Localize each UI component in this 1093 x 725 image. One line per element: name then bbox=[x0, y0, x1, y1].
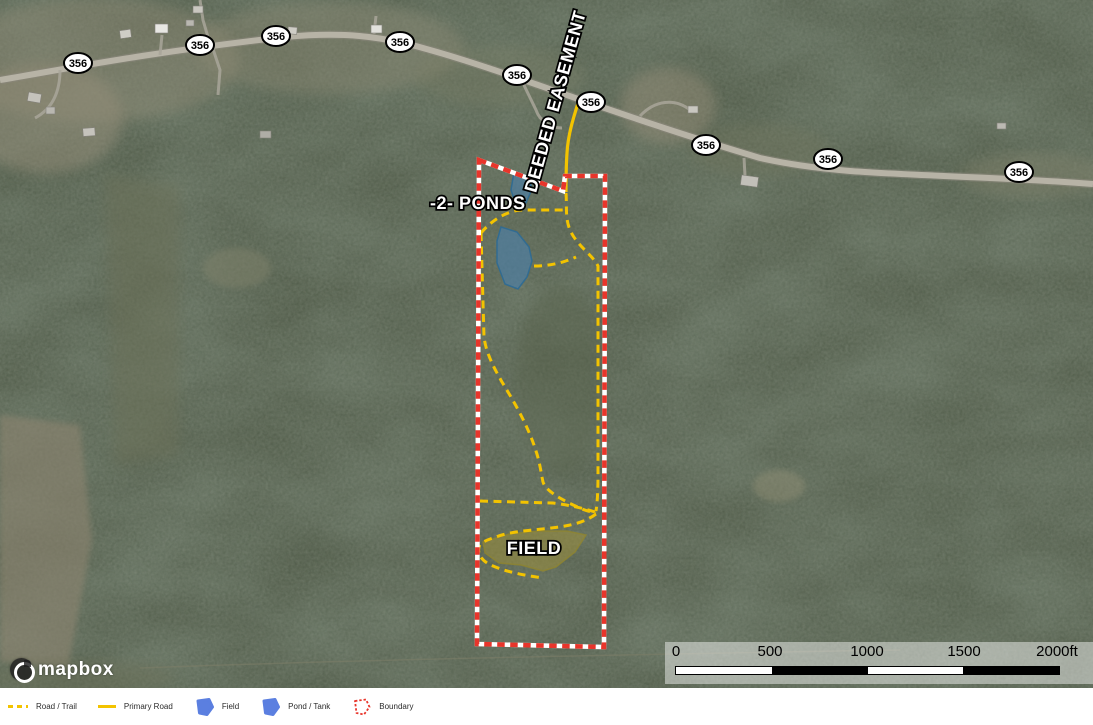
svg-text:356: 356 bbox=[582, 97, 600, 109]
legend-label: Pond / Tank bbox=[288, 702, 330, 711]
svg-text:356: 356 bbox=[267, 31, 285, 43]
legend-item-road-trail: Road / Trail bbox=[8, 702, 77, 711]
field-label: FIELD bbox=[507, 538, 562, 558]
svg-text:356: 356 bbox=[697, 140, 715, 152]
scale-segment bbox=[868, 667, 964, 674]
scale-segment bbox=[963, 667, 1059, 674]
route-shield-356: 356 bbox=[503, 65, 531, 85]
legend-item-primary-road: Primary Road bbox=[98, 702, 173, 711]
mapbox-logo[interactable]: mapbox bbox=[10, 658, 114, 681]
legend-label: Primary Road bbox=[124, 702, 173, 711]
mapbox-icon bbox=[10, 658, 33, 681]
scale-bar-segments bbox=[675, 666, 1060, 675]
legend-bar: Road / Trail Primary Road Field Pond / T… bbox=[0, 688, 1093, 725]
scale-tick: 1500 bbox=[947, 643, 980, 660]
legend-item-field: Field bbox=[194, 698, 239, 716]
route-shield-356: 356 bbox=[64, 53, 92, 73]
svg-text:356: 356 bbox=[508, 70, 526, 82]
road-trail-dashed-line-icon bbox=[8, 705, 28, 708]
scale-tick: 500 bbox=[757, 643, 782, 660]
legend-label: Boundary bbox=[379, 702, 413, 711]
scale-segment bbox=[772, 667, 868, 674]
route-shield-356: 356 bbox=[577, 92, 605, 112]
route-shield-356: 356 bbox=[814, 149, 842, 169]
scale-bar: 0 500 1000 1500 2000ft bbox=[665, 642, 1093, 684]
route-shield-356: 356 bbox=[262, 26, 290, 46]
svg-text:356: 356 bbox=[1010, 167, 1028, 179]
scale-tick: 1000 bbox=[850, 643, 883, 660]
map-canvas[interactable]: -2- PONDS FIELD DEEDED EASEMENT 356 356 … bbox=[0, 0, 1093, 688]
mapbox-wordmark: mapbox bbox=[38, 659, 114, 681]
field-polygon-icon bbox=[194, 698, 214, 716]
legend-label: Road / Trail bbox=[36, 702, 77, 711]
boundary-outline-icon bbox=[351, 698, 371, 716]
route-shield-356: 356 bbox=[1005, 162, 1033, 182]
ponds-label: -2- PONDS bbox=[430, 193, 526, 213]
route-shield-356: 356 bbox=[692, 135, 720, 155]
scale-segment bbox=[676, 667, 772, 674]
svg-text:356: 356 bbox=[69, 58, 87, 70]
route-shield-356: 356 bbox=[186, 35, 214, 55]
map-application: -2- PONDS FIELD DEEDED EASEMENT 356 356 … bbox=[0, 0, 1093, 725]
primary-road-solid-line-icon bbox=[98, 705, 116, 708]
route-shield-356: 356 bbox=[386, 32, 414, 52]
svg-text:356: 356 bbox=[819, 154, 837, 166]
svg-text:356: 356 bbox=[191, 40, 209, 52]
legend-item-pond-tank: Pond / Tank bbox=[260, 698, 330, 716]
legend-label: Field bbox=[222, 702, 239, 711]
legend-item-boundary: Boundary bbox=[351, 698, 413, 716]
scale-tick: 2000ft bbox=[1036, 643, 1078, 660]
scale-tick: 0 bbox=[672, 643, 680, 660]
svg-text:356: 356 bbox=[391, 37, 409, 49]
pond-polygon-icon bbox=[260, 698, 280, 716]
